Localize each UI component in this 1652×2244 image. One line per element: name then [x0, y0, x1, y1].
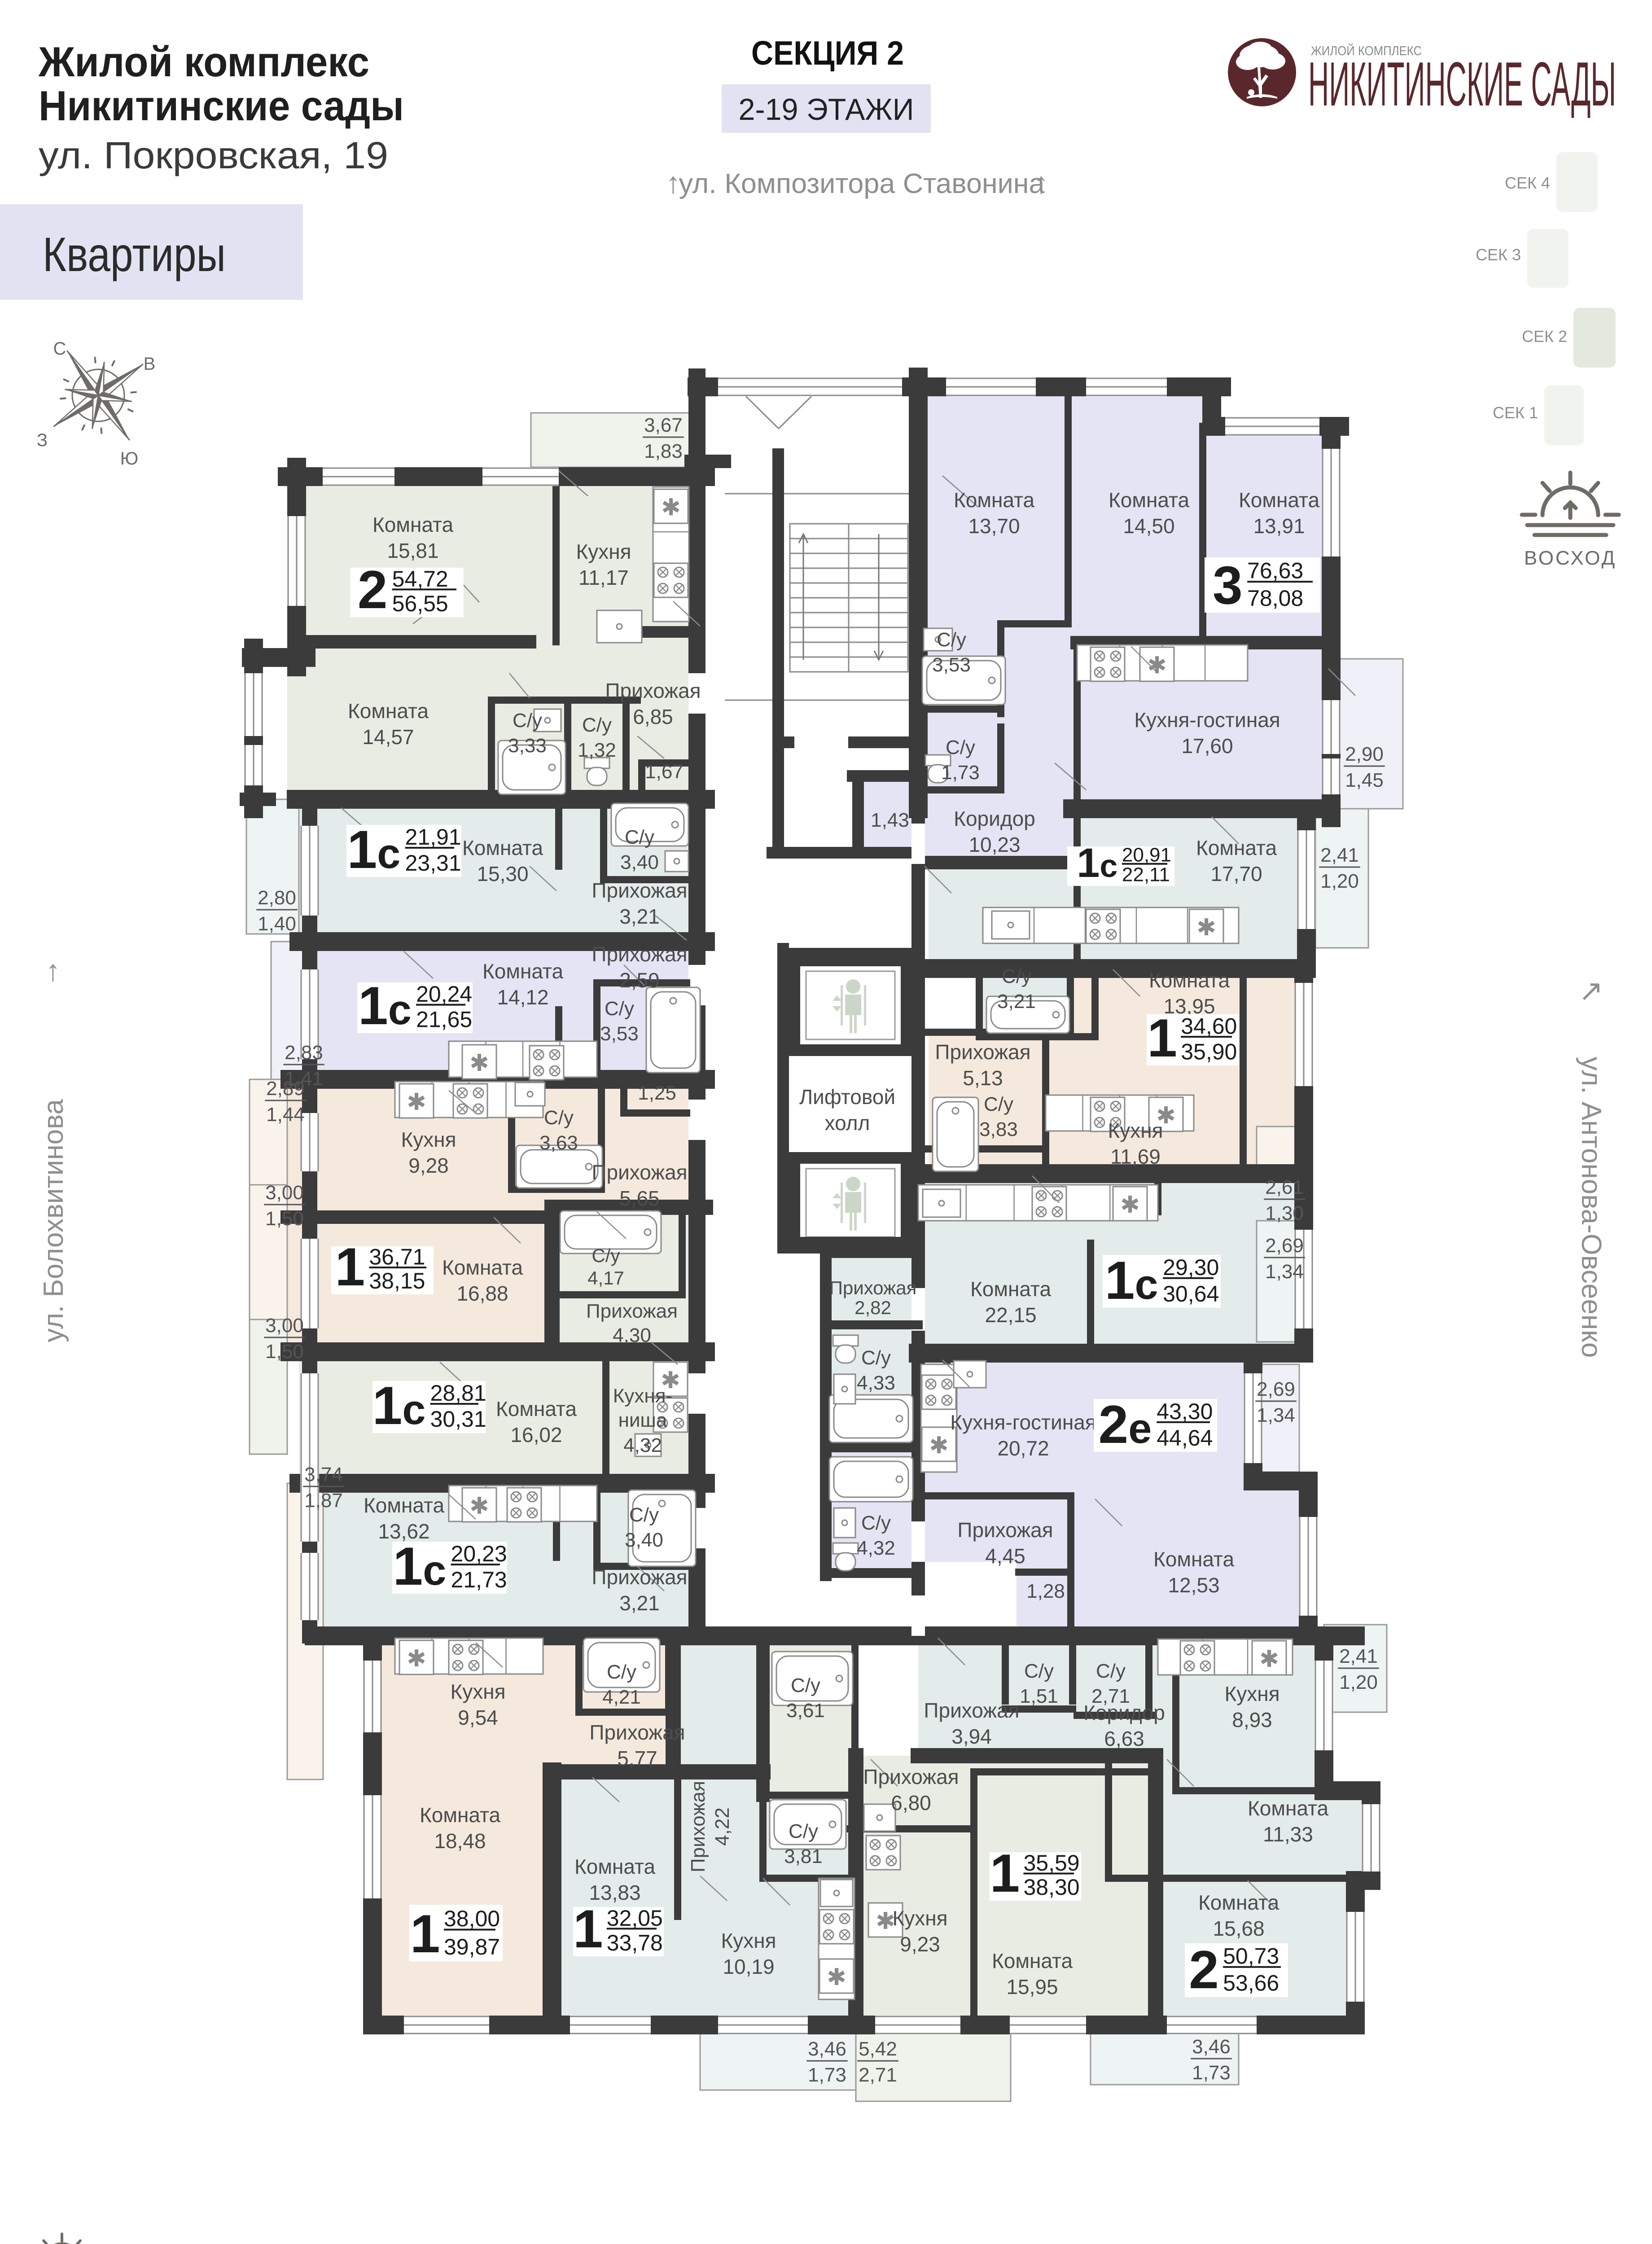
- svg-text:1,43: 1,43: [871, 809, 909, 831]
- svg-text:76,63: 76,63: [1247, 558, 1303, 583]
- svg-text:4,32: 4,32: [623, 1434, 662, 1456]
- svg-text:3,81: 3,81: [784, 1845, 823, 1867]
- svg-text:С/у: С/у: [607, 1661, 636, 1683]
- svg-text:2,59: 2,59: [619, 969, 660, 992]
- svg-text:✱: ✱: [1120, 1192, 1140, 1218]
- svg-text:14,12: 14,12: [497, 986, 548, 1009]
- svg-text:Кухня: Кухня: [401, 1128, 456, 1151]
- svg-text:2,80: 2,80: [258, 887, 296, 909]
- svg-text:С/у: С/у: [946, 736, 975, 758]
- svg-text:13,91: 13,91: [1253, 514, 1305, 538]
- svg-text:4,33: 4,33: [857, 1372, 895, 1394]
- svg-text:Комната: Комната: [442, 1256, 523, 1279]
- svg-text:16,02: 16,02: [510, 1423, 562, 1446]
- svg-text:С/у: С/у: [791, 1674, 820, 1696]
- svg-text:С/у: С/у: [629, 1504, 659, 1526]
- svg-text:2,41: 2,41: [1320, 844, 1359, 866]
- svg-text:36,71: 36,71: [369, 1245, 425, 1270]
- svg-text:21,65: 21,65: [416, 1007, 472, 1032]
- svg-text:Никитинские сады: Никитинские сады: [39, 82, 404, 129]
- svg-text:СЕК 3: СЕК 3: [1476, 245, 1521, 264]
- svg-text:54,72: 54,72: [392, 566, 448, 592]
- svg-text:53,66: 53,66: [1223, 1971, 1279, 1996]
- svg-text:Прихожая: Прихожая: [935, 1040, 1030, 1064]
- svg-text:ул. Болохвитинова: ул. Болохвитинова: [38, 1099, 69, 1342]
- svg-text:Прихожая: Прихожая: [586, 1300, 678, 1322]
- svg-text:Прихожая: Прихожая: [863, 1765, 959, 1788]
- svg-text:22,11: 22,11: [1122, 863, 1170, 885]
- svg-text:11,69: 11,69: [1110, 1145, 1161, 1168]
- svg-text:3,40: 3,40: [620, 851, 659, 873]
- svg-text:Комната: Комната: [348, 699, 429, 723]
- svg-text:Кухня: Кухня: [892, 1907, 947, 1930]
- svg-text:Кухня: Кухня: [1224, 1682, 1280, 1705]
- svg-text:20,23: 20,23: [451, 1541, 507, 1566]
- svg-text:32,05: 32,05: [607, 1906, 663, 1931]
- svg-text:38,30: 38,30: [1023, 1875, 1079, 1900]
- svg-text:33,78: 33,78: [607, 1930, 663, 1955]
- svg-text:Комната: Комната: [462, 836, 543, 859]
- svg-text:3,21: 3,21: [619, 1591, 660, 1615]
- svg-text:1,28: 1,28: [1026, 1580, 1065, 1602]
- svg-text:9,23: 9,23: [900, 1933, 940, 1956]
- svg-text:СЕК 4: СЕК 4: [1505, 174, 1550, 192]
- svg-text:Прихожая: Прихожая: [924, 1699, 1019, 1722]
- svg-text:Комната: Комната: [992, 1949, 1073, 1972]
- svg-text:44,64: 44,64: [1157, 1425, 1213, 1451]
- svg-text:1,20: 1,20: [1339, 1671, 1378, 1693]
- svg-text:С/у: С/у: [544, 1107, 574, 1129]
- svg-text:3,00: 3,00: [265, 1315, 304, 1337]
- svg-text:ул. Покровская, 19: ул. Покровская, 19: [39, 134, 388, 176]
- svg-text:ул. Композитора Ставонина: ул. Композитора Ставонина: [679, 168, 1045, 199]
- svg-text:21,73: 21,73: [451, 1567, 507, 1592]
- svg-text:4,30: 4,30: [613, 1324, 651, 1346]
- svg-text:З: З: [37, 430, 48, 450]
- svg-text:56,55: 56,55: [392, 591, 448, 616]
- svg-text:С/у: С/у: [937, 629, 966, 651]
- svg-text:холл: холл: [825, 1111, 870, 1135]
- svg-text:Комната: Комната: [1149, 969, 1230, 992]
- svg-text:1,32: 1,32: [578, 739, 616, 761]
- svg-text:Прихожая: Прихожая: [687, 1781, 709, 1872]
- svg-text:С/у: С/у: [1024, 1660, 1054, 1682]
- svg-text:1: 1: [573, 1899, 603, 1959]
- svg-text:3,21: 3,21: [997, 991, 1036, 1012]
- svg-text:Комната: Комната: [1109, 488, 1190, 512]
- svg-text:4,21: 4,21: [602, 1686, 641, 1708]
- svg-text:С/у: С/у: [1096, 1660, 1126, 1682]
- svg-text:2,61: 2,61: [1265, 1176, 1304, 1198]
- svg-text:✱: ✱: [407, 1646, 426, 1672]
- svg-text:20,72: 20,72: [997, 1437, 1049, 1460]
- svg-text:1,51: 1,51: [1020, 1685, 1058, 1707]
- svg-text:Коридор: Коридор: [1083, 1701, 1165, 1724]
- svg-text:1,20: 1,20: [1320, 870, 1359, 892]
- svg-text:23,31: 23,31: [405, 850, 461, 876]
- svg-text:Комната: Комната: [1239, 488, 1320, 512]
- svg-text:18,48: 18,48: [434, 1829, 486, 1853]
- svg-text:3,83: 3,83: [979, 1118, 1018, 1140]
- svg-text:5,13: 5,13: [963, 1066, 1003, 1090]
- svg-text:2-19 ЭТАЖИ: 2-19 ЭТАЖИ: [739, 92, 914, 127]
- svg-text:Лифтовой: Лифтовой: [799, 1085, 895, 1109]
- svg-text:Прихожая: Прихожая: [589, 1721, 685, 1744]
- svg-text:Комната: Комната: [364, 1494, 445, 1517]
- svg-text:3,61: 3,61: [786, 1700, 825, 1722]
- svg-text:ул. Антонова-Овсеенко: ул. Антонова-Овсеенко: [1576, 1056, 1607, 1358]
- svg-text:35,59: 35,59: [1023, 1850, 1079, 1876]
- svg-text:11,33: 11,33: [1263, 1823, 1313, 1846]
- svg-text:1,73: 1,73: [1192, 2062, 1231, 2084]
- svg-text:1,45: 1,45: [1345, 769, 1384, 791]
- svg-text:Комната: Комната: [574, 1855, 656, 1878]
- svg-text:50,73: 50,73: [1223, 1944, 1279, 1969]
- svg-text:СЕК 1: СЕК 1: [1493, 403, 1538, 422]
- svg-text:Квартиры: Квартиры: [43, 227, 226, 281]
- svg-text:4,22: 4,22: [711, 1807, 733, 1846]
- svg-text:Комната: Комната: [1196, 836, 1277, 859]
- svg-text:3,53: 3,53: [932, 654, 971, 676]
- svg-text:Комната: Комната: [954, 488, 1035, 512]
- svg-text:1,34: 1,34: [1265, 1261, 1304, 1283]
- svg-text:Прихожая: Прихожая: [592, 1565, 687, 1589]
- svg-text:2,90: 2,90: [1345, 743, 1384, 765]
- svg-text:1: 1: [335, 1237, 365, 1297]
- svg-text:Комната: Комната: [1198, 1891, 1280, 1914]
- svg-text:Коридор: Коридор: [954, 807, 1035, 830]
- svg-text:Комната: Комната: [1248, 1797, 1329, 1820]
- svg-text:1,50: 1,50: [265, 1208, 304, 1230]
- svg-text:✱: ✱: [469, 1050, 489, 1076]
- svg-text:3,67: 3,67: [644, 414, 683, 436]
- svg-text:39,87: 39,87: [444, 1934, 500, 1959]
- svg-text:Комната: Комната: [420, 1803, 501, 1827]
- svg-text:Кухня: Кухня: [721, 1929, 776, 1952]
- svg-text:9,54: 9,54: [458, 1706, 498, 1729]
- svg-text:2,69: 2,69: [1257, 1378, 1295, 1400]
- svg-text:1,50: 1,50: [265, 1341, 304, 1363]
- svg-text:20,24: 20,24: [416, 982, 472, 1007]
- svg-text:43,30: 43,30: [1157, 1399, 1213, 1424]
- svg-text:Комната: Комната: [482, 960, 564, 983]
- svg-text:10,23: 10,23: [968, 833, 1020, 856]
- svg-text:Кухня-гостиная: Кухня-гостиная: [950, 1411, 1096, 1434]
- svg-text:С/у: С/у: [861, 1512, 891, 1534]
- svg-text:22,15: 22,15: [985, 1303, 1036, 1327]
- svg-text:СЕКЦИЯ 2: СЕКЦИЯ 2: [751, 34, 904, 72]
- svg-text:5,77: 5,77: [617, 1747, 657, 1770]
- svg-text:16,88: 16,88: [456, 1282, 508, 1305]
- svg-text:ниша: ниша: [618, 1409, 667, 1431]
- svg-text:3,63: 3,63: [539, 1132, 578, 1154]
- svg-text:2,89: 2,89: [266, 1078, 305, 1100]
- svg-text:3,33: 3,33: [508, 735, 547, 757]
- svg-text:15,81: 15,81: [387, 539, 438, 562]
- svg-text:Комната: Комната: [1153, 1547, 1235, 1571]
- svg-text:3,46: 3,46: [1192, 2036, 1231, 2058]
- svg-text:35,90: 35,90: [1181, 1039, 1237, 1064]
- svg-text:↑: ↑: [46, 954, 61, 987]
- svg-text:14,50: 14,50: [1123, 514, 1174, 538]
- svg-text:✱: ✱: [1259, 1646, 1279, 1672]
- svg-text:С/у: С/у: [605, 998, 634, 1020]
- svg-text:11,17: 11,17: [578, 566, 629, 589]
- svg-text:3,00: 3,00: [265, 1182, 304, 1204]
- svg-text:3,74: 3,74: [304, 1464, 343, 1486]
- svg-text:↗: ↗: [1578, 974, 1603, 1007]
- svg-text:38,15: 38,15: [369, 1268, 425, 1293]
- svg-text:5,65: 5,65: [619, 1187, 660, 1210]
- svg-text:Кухня: Кухня: [576, 540, 631, 563]
- svg-text:С: С: [53, 339, 66, 359]
- svg-text:1,40: 1,40: [258, 913, 296, 935]
- svg-text:1: 1: [990, 1843, 1020, 1903]
- svg-text:С/у: С/у: [861, 1347, 891, 1369]
- svg-text:Комната: Комната: [970, 1277, 1052, 1301]
- svg-text:30,64: 30,64: [1163, 1281, 1219, 1306]
- svg-text:4,17: 4,17: [587, 1267, 624, 1289]
- svg-text:С/у: С/у: [513, 710, 542, 732]
- svg-text:✱: ✱: [827, 1964, 846, 1990]
- svg-text:3,21: 3,21: [619, 905, 660, 928]
- svg-text:1,34: 1,34: [1257, 1404, 1295, 1426]
- svg-text:✱: ✱: [1196, 915, 1216, 941]
- svg-text:17,60: 17,60: [1181, 734, 1233, 758]
- svg-text:С/у: С/у: [984, 1093, 1013, 1115]
- svg-text:13,70: 13,70: [968, 514, 1020, 538]
- svg-text:5,42: 5,42: [859, 2038, 897, 2060]
- svg-text:✱: ✱: [929, 1433, 949, 1459]
- svg-text:4,32: 4,32: [857, 1537, 895, 1559]
- svg-text:✱: ✱: [661, 495, 681, 521]
- svg-text:15,30: 15,30: [477, 862, 528, 885]
- svg-text:9,28: 9,28: [408, 1154, 449, 1177]
- svg-text:С/у: С/у: [582, 714, 612, 736]
- svg-text:1,25: 1,25: [638, 1082, 676, 1104]
- svg-text:3: 3: [1213, 555, 1243, 615]
- svg-text:1,87: 1,87: [304, 1490, 343, 1512]
- svg-text:2,83: 2,83: [285, 1042, 323, 1064]
- svg-text:20,91: 20,91: [1122, 844, 1171, 866]
- svg-text:С/у: С/у: [1002, 965, 1031, 987]
- svg-text:3,46: 3,46: [808, 2038, 846, 2060]
- svg-text:38,00: 38,00: [444, 1906, 500, 1931]
- svg-text:Жилой комплекс: Жилой комплекс: [38, 38, 369, 85]
- svg-text:2,69: 2,69: [1265, 1235, 1304, 1257]
- svg-text:21,91: 21,91: [405, 824, 461, 850]
- svg-text:1,30: 1,30: [1265, 1202, 1304, 1224]
- svg-text:СЕК 2: СЕК 2: [1522, 327, 1567, 346]
- svg-text:↑: ↑: [1034, 166, 1049, 199]
- svg-text:1: 1: [410, 1904, 440, 1964]
- svg-text:Прихожая: Прихожая: [829, 1277, 917, 1298]
- svg-text:НИКИТИНСКИЕ САДЫ: НИКИТИНСКИЕ САДЫ: [1308, 49, 1616, 119]
- svg-text:30,31: 30,31: [430, 1407, 486, 1432]
- svg-text:Кухня: Кухня: [1108, 1119, 1163, 1142]
- svg-text:28,81: 28,81: [430, 1381, 486, 1406]
- svg-text:Кухня-: Кухня-: [613, 1385, 672, 1407]
- svg-text:Кухня: Кухня: [450, 1680, 505, 1703]
- svg-text:1: 1: [1147, 1008, 1177, 1068]
- svg-text:1,67: 1,67: [645, 761, 684, 783]
- svg-text:Прихожая: Прихожая: [592, 942, 687, 966]
- svg-text:6,80: 6,80: [891, 1791, 931, 1814]
- svg-text:29,30: 29,30: [1163, 1255, 1219, 1280]
- svg-text:Комната: Комната: [372, 513, 454, 536]
- svg-text:78,08: 78,08: [1247, 586, 1303, 611]
- svg-text:2: 2: [1189, 1940, 1219, 2000]
- svg-text:ВОСХОД: ВОСХОД: [1524, 547, 1617, 569]
- svg-text:1,73: 1,73: [941, 762, 980, 784]
- svg-text:С/у: С/у: [789, 1820, 818, 1842]
- svg-text:1,73: 1,73: [808, 2064, 846, 2086]
- svg-text:15,68: 15,68: [1213, 1917, 1264, 1940]
- svg-text:1,83: 1,83: [644, 440, 683, 462]
- svg-text:17,70: 17,70: [1210, 862, 1262, 885]
- svg-text:34,60: 34,60: [1181, 1013, 1237, 1039]
- svg-text:12,53: 12,53: [1168, 1573, 1219, 1597]
- svg-text:✱: ✱: [407, 1089, 426, 1115]
- svg-text:3,53: 3,53: [600, 1023, 639, 1045]
- svg-text:8,93: 8,93: [1232, 1708, 1272, 1731]
- svg-text:3,40: 3,40: [625, 1529, 663, 1551]
- svg-text:Прихожая: Прихожая: [592, 879, 687, 902]
- svg-text:6,63: 6,63: [1104, 1727, 1144, 1750]
- svg-text:✱: ✱: [469, 1493, 489, 1519]
- svg-text:2,41: 2,41: [1339, 1645, 1378, 1667]
- svg-text:В: В: [144, 354, 156, 374]
- svg-text:1,44: 1,44: [266, 1104, 305, 1126]
- svg-text:3,94: 3,94: [951, 1725, 992, 1748]
- svg-text:15,95: 15,95: [1006, 1975, 1058, 1999]
- svg-text:4,45: 4,45: [985, 1544, 1025, 1568]
- svg-text:Ю: Ю: [120, 449, 138, 469]
- svg-text:С/у: С/у: [625, 826, 654, 848]
- svg-text:2,71: 2,71: [859, 2064, 897, 2086]
- svg-text:↑: ↑: [666, 166, 681, 199]
- svg-text:Кухня-гостиная: Кухня-гостиная: [1134, 708, 1280, 732]
- svg-text:Прихожая: Прихожая: [592, 1161, 687, 1184]
- svg-text:2: 2: [358, 560, 388, 620]
- svg-text:Прихожая: Прихожая: [957, 1518, 1053, 1542]
- svg-text:14,57: 14,57: [362, 725, 414, 749]
- svg-text:Прихожая: Прихожая: [605, 679, 701, 702]
- svg-text:Комната: Комната: [496, 1397, 577, 1420]
- svg-text:2,82: 2,82: [854, 1297, 891, 1318]
- svg-text:6,85: 6,85: [633, 705, 673, 728]
- svg-text:10,19: 10,19: [723, 1955, 774, 1978]
- svg-text:С/у: С/у: [592, 1245, 620, 1266]
